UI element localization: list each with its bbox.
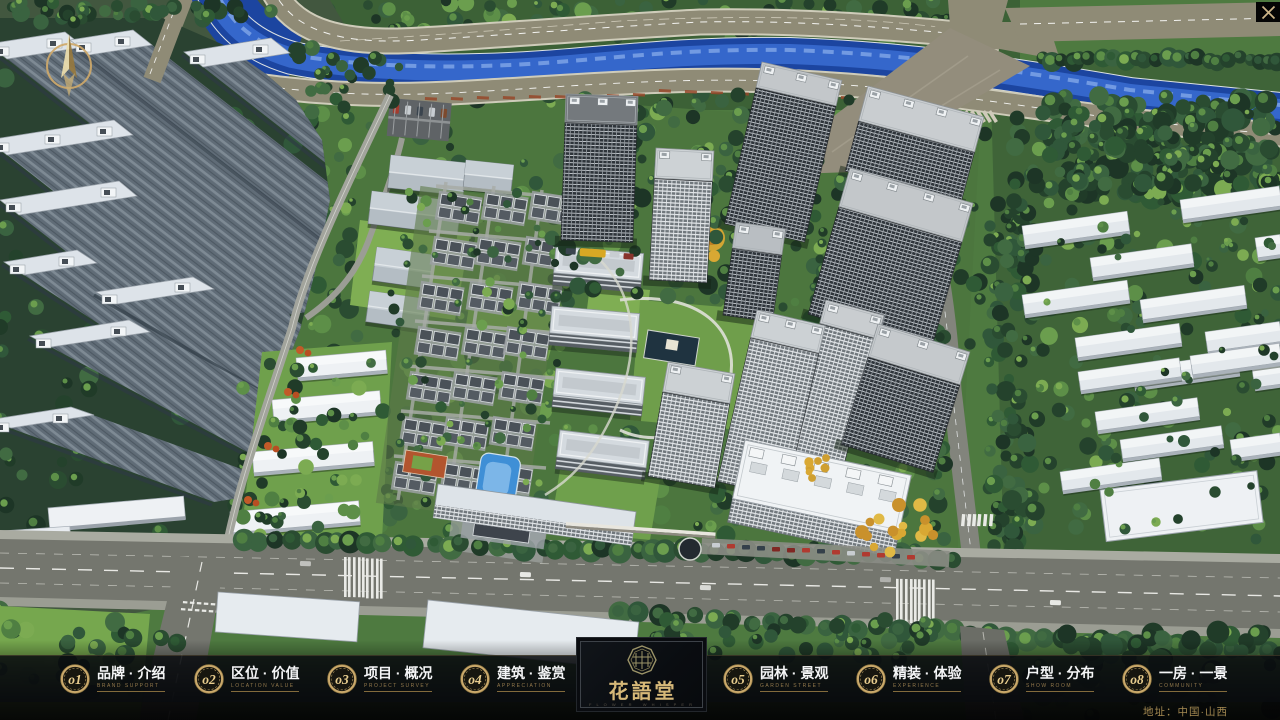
svg-text:o6: o6 (864, 672, 878, 687)
svg-text:o2: o2 (202, 672, 216, 687)
svg-text:o1: o1 (68, 672, 82, 687)
svg-text:o5: o5 (731, 672, 745, 687)
svg-text:o8: o8 (1130, 672, 1144, 687)
svg-text:o3: o3 (335, 672, 349, 687)
svg-text:o4: o4 (468, 672, 482, 687)
svg-text:o7: o7 (997, 672, 1012, 687)
